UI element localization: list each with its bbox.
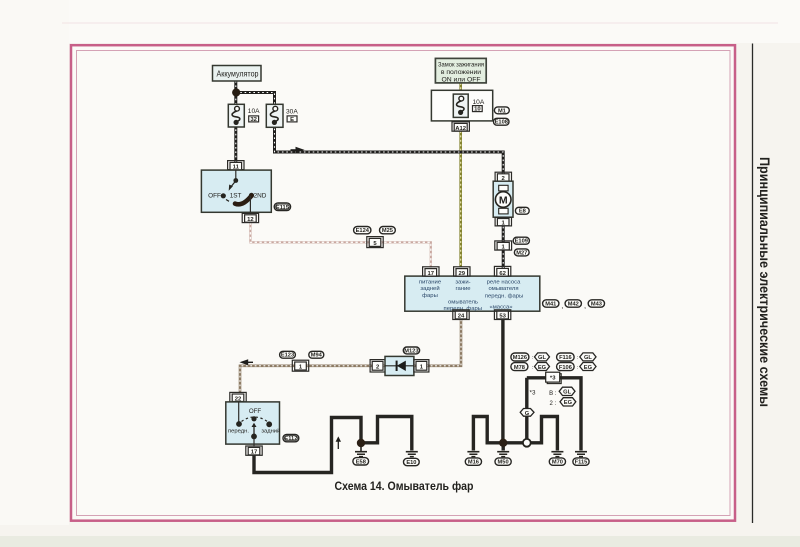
svg-text:GL: GL <box>563 390 571 396</box>
svg-text:10: 10 <box>474 107 481 113</box>
svg-text:*3: *3 <box>530 390 536 397</box>
svg-text:,: , <box>584 301 586 310</box>
svg-text:гание: гание <box>455 286 471 292</box>
svg-text:питание: питание <box>419 279 442 285</box>
svg-text:M16: M16 <box>468 460 479 466</box>
svg-text:в положении: в положении <box>441 69 481 76</box>
svg-text:17: 17 <box>251 450 258 456</box>
svg-text:EG: EG <box>564 400 573 406</box>
svg-text:E112: E112 <box>284 436 297 442</box>
svg-text:реле насоса: реле насоса <box>487 279 521 285</box>
svg-text:53: 53 <box>499 314 506 320</box>
svg-text:29: 29 <box>459 271 466 277</box>
svg-text:GL: GL <box>538 355 546 361</box>
svg-text:M94: M94 <box>311 353 323 359</box>
svg-text:F106: F106 <box>559 365 572 371</box>
svg-text:E: E <box>290 117 294 123</box>
svg-text:E8: E8 <box>519 209 526 215</box>
svg-text:E108: E108 <box>495 120 508 126</box>
svg-text:E58: E58 <box>356 459 366 465</box>
svg-text:ON или OFF: ON или OFF <box>441 77 480 84</box>
svg-text:,: , <box>561 301 563 310</box>
svg-text:M70: M70 <box>552 460 563 466</box>
svg-text:2 :: 2 : <box>549 401 556 407</box>
svg-text:Схема 14. Омыватель фар: Схема 14. Омыватель фар <box>335 479 474 493</box>
svg-text:M78: M78 <box>514 365 525 371</box>
svg-text:62: 62 <box>499 271 506 277</box>
svg-text:*3: *3 <box>550 376 556 382</box>
svg-text:M1: M1 <box>498 108 506 114</box>
svg-text:M43: M43 <box>591 302 602 308</box>
svg-text:омыватель: омыватель <box>448 299 478 305</box>
svg-text:F115: F115 <box>575 460 588 466</box>
svg-text:M: M <box>499 194 508 206</box>
svg-text:OFF: OFF <box>208 193 221 200</box>
svg-text:Аккумулятор: Аккумулятор <box>217 70 259 79</box>
svg-text:E123: E123 <box>281 353 294 359</box>
svg-text:E109: E109 <box>515 239 528 245</box>
svg-text:задний: задний <box>261 428 280 435</box>
svg-text:24: 24 <box>458 314 465 320</box>
svg-text:E115: E115 <box>276 205 289 211</box>
svg-text:GL: GL <box>584 355 592 361</box>
svg-text:задней: задней <box>420 285 439 292</box>
svg-text:17: 17 <box>428 271 435 277</box>
svg-text:M27: M27 <box>516 250 527 256</box>
svg-text:Замок зажигания: Замок зажигания <box>438 62 484 69</box>
svg-text:M123: M123 <box>404 348 418 354</box>
svg-text:M50: M50 <box>498 460 509 466</box>
svg-text:передн.: передн. <box>228 429 249 435</box>
svg-text:передн. фары: передн. фары <box>485 294 524 300</box>
svg-text:омывателя: омывателя <box>488 286 518 292</box>
svg-text:E124: E124 <box>356 228 370 234</box>
svg-text:EG: EG <box>584 365 593 371</box>
svg-text:30A: 30A <box>286 109 298 116</box>
svg-text:2ND: 2ND <box>254 193 267 200</box>
svg-text:Принципиальные электрические с: Принципиальные электрические схемы <box>757 157 773 407</box>
svg-text:фары: фары <box>422 293 438 299</box>
svg-text:EG: EG <box>538 365 547 371</box>
svg-text:зажи-: зажи- <box>455 279 470 285</box>
svg-text:A12: A12 <box>455 126 467 132</box>
svg-text:OFF: OFF <box>249 408 262 415</box>
svg-text:32: 32 <box>250 117 257 123</box>
svg-text:1ST: 1ST <box>230 193 242 200</box>
svg-text:M25: M25 <box>382 228 393 234</box>
svg-text:E10: E10 <box>406 460 416 466</box>
svg-text:M126: M126 <box>513 355 527 361</box>
svg-text:M41: M41 <box>545 302 556 308</box>
svg-text:В :: В : <box>549 391 557 397</box>
svg-text:M42: M42 <box>568 302 579 308</box>
svg-text:12: 12 <box>247 217 254 223</box>
svg-text:F116: F116 <box>559 355 572 361</box>
svg-text:10A: 10A <box>248 108 260 115</box>
svg-text:10A: 10A <box>473 99 485 106</box>
svg-text:G: G <box>525 411 530 417</box>
